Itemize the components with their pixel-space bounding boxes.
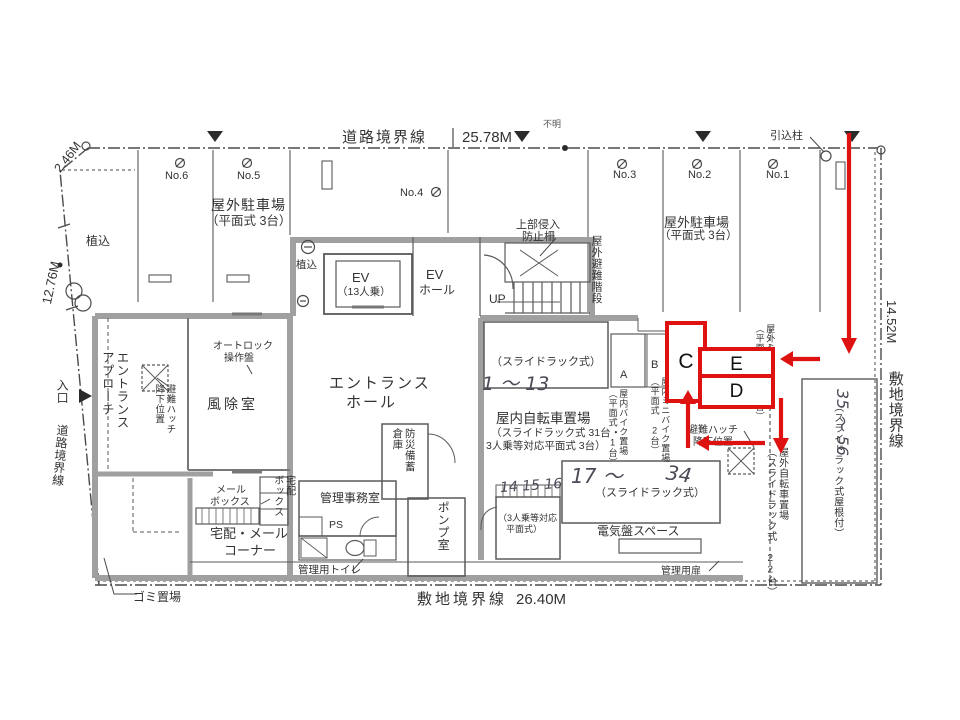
- outdoor-bicycle-label: 屋外自転車置場 （スライドラック式 22台）: [764, 447, 788, 589]
- autolock-label-2: 操作盤: [224, 353, 254, 365]
- annotation-letter-c: C: [678, 350, 693, 374]
- entrance-hall-1: エントランス: [329, 375, 431, 393]
- handwritten-34: 34: [664, 461, 692, 488]
- road-boundary-top-label: 道路境界線: [342, 129, 427, 147]
- indoor-bicycle-sub2: 3人乗等対応平面式 3台）: [486, 440, 606, 452]
- slide-rack-label-1: （スライドラック式）: [491, 356, 601, 369]
- ev-hall-2: ホール: [419, 283, 455, 297]
- road-boundary-top-dim: 25.78M: [462, 129, 512, 147]
- outdoor-parking-left-label: 屋外駐車場: [211, 197, 286, 214]
- plan-linework: [0, 0, 960, 720]
- delivery-mail-corner-2: コーナー: [224, 543, 276, 558]
- entrance-arrow: [79, 389, 92, 403]
- service-pole-label: 引込柱: [770, 130, 803, 143]
- evac-hatch-left-label: 避難ハッチ 降下位置: [153, 384, 175, 440]
- stall-no2: No.2: [688, 169, 711, 182]
- indoor-bicycle-title: 屋内自転車置場: [496, 411, 591, 427]
- ps-label: PS: [329, 519, 343, 531]
- outdoor-escape-stair-label: 屋外避難階段: [589, 235, 602, 315]
- planting-label-2: 植込: [296, 259, 317, 271]
- outdoor-parking-left-sub: （平面式 3台）: [206, 214, 291, 229]
- slide-rack-label-2: （スライドラック式）: [595, 487, 705, 500]
- delivery-mail-corner-1: 宅配・メール: [210, 526, 288, 541]
- stall-b-label: B: [651, 359, 658, 372]
- admin-toilet-label: 管理用トイレ: [298, 564, 361, 576]
- entrance-hall-2: ホール: [346, 394, 397, 412]
- outdoor-parking-right-sub: （平面式 3台）: [659, 230, 738, 244]
- stall-no6: No.6: [165, 170, 188, 183]
- annotation-letter-d: D: [730, 381, 744, 403]
- site-boundary-bottom-dim: 26.40M: [516, 591, 566, 609]
- site-boundary-right-label: 敷地境界線: [886, 371, 904, 471]
- pump-room-label: ポンプ室: [436, 501, 450, 561]
- ev-hall-1: EV: [426, 267, 443, 282]
- admin-office-label: 管理事務室: [320, 491, 380, 505]
- stall-no5: No.5: [237, 170, 260, 183]
- outdoor-parking-right-label: 屋外駐車場: [664, 215, 729, 230]
- evac-hatch-right-2: 降下位置: [693, 437, 733, 449]
- stall-no3: No.3: [613, 169, 636, 182]
- annotation-box-d: D: [698, 374, 775, 409]
- site-plan-drawing: 道路境界線 25.78M 引込柱 不明 No.6 No.5 No.4 No.3 …: [0, 0, 960, 720]
- fence-label-2: 防止柵: [522, 231, 555, 244]
- site-boundary-right-dim: 14.52M: [884, 300, 899, 343]
- autolock-label-1: オートロック: [213, 341, 273, 353]
- delivery-box-label: 宅配 ボックス: [271, 475, 295, 525]
- mailbox-label-2: ボックス: [210, 497, 250, 509]
- indoor-bike-label: 屋内バイク置場 （平面式 1台）: [607, 389, 628, 465]
- site-boundary-bottom-label: 敷地境界線: [417, 591, 507, 609]
- ev-capacity: （13人乗）: [337, 286, 391, 298]
- handwritten-1-13: 1 〜 13: [482, 373, 549, 395]
- stall-a-label: A: [620, 369, 627, 382]
- unknown-pole-label: 不明: [543, 119, 561, 130]
- windbreak-label: 風除室: [207, 396, 258, 413]
- stall-no4: No.4: [400, 187, 423, 200]
- admin-door-label: 管理用扉: [661, 566, 701, 578]
- disaster-storage-label: 防災備蓄 倉庫: [391, 428, 416, 494]
- garbage-label: ゴミ置場: [133, 590, 181, 604]
- annotation-letter-e: E: [730, 354, 743, 376]
- planting-label-1: 植込: [86, 234, 110, 248]
- stall-no1: No.1: [766, 169, 789, 182]
- three-person-label-1: （3人乗等対応: [498, 513, 557, 524]
- indoor-bicycle-sub1: （スライドラック式 31台・: [491, 427, 621, 439]
- mailbox-label-1: メール: [216, 485, 246, 497]
- elec-space-label: 電気盤スペース: [597, 524, 680, 538]
- up-label: UP: [489, 292, 506, 306]
- entrance-approach-label: エントランス アプローチ: [99, 351, 129, 443]
- ev-label: EV: [352, 270, 369, 285]
- evac-hatch-right-1: 避難ハッチ: [688, 425, 738, 437]
- handwritten-35-56: 35 〜 56: [832, 389, 851, 456]
- three-person-label-2: 平面式）: [506, 524, 542, 535]
- entrance-label: 入口: [55, 379, 69, 411]
- handwritten-17: 17 〜: [571, 465, 623, 489]
